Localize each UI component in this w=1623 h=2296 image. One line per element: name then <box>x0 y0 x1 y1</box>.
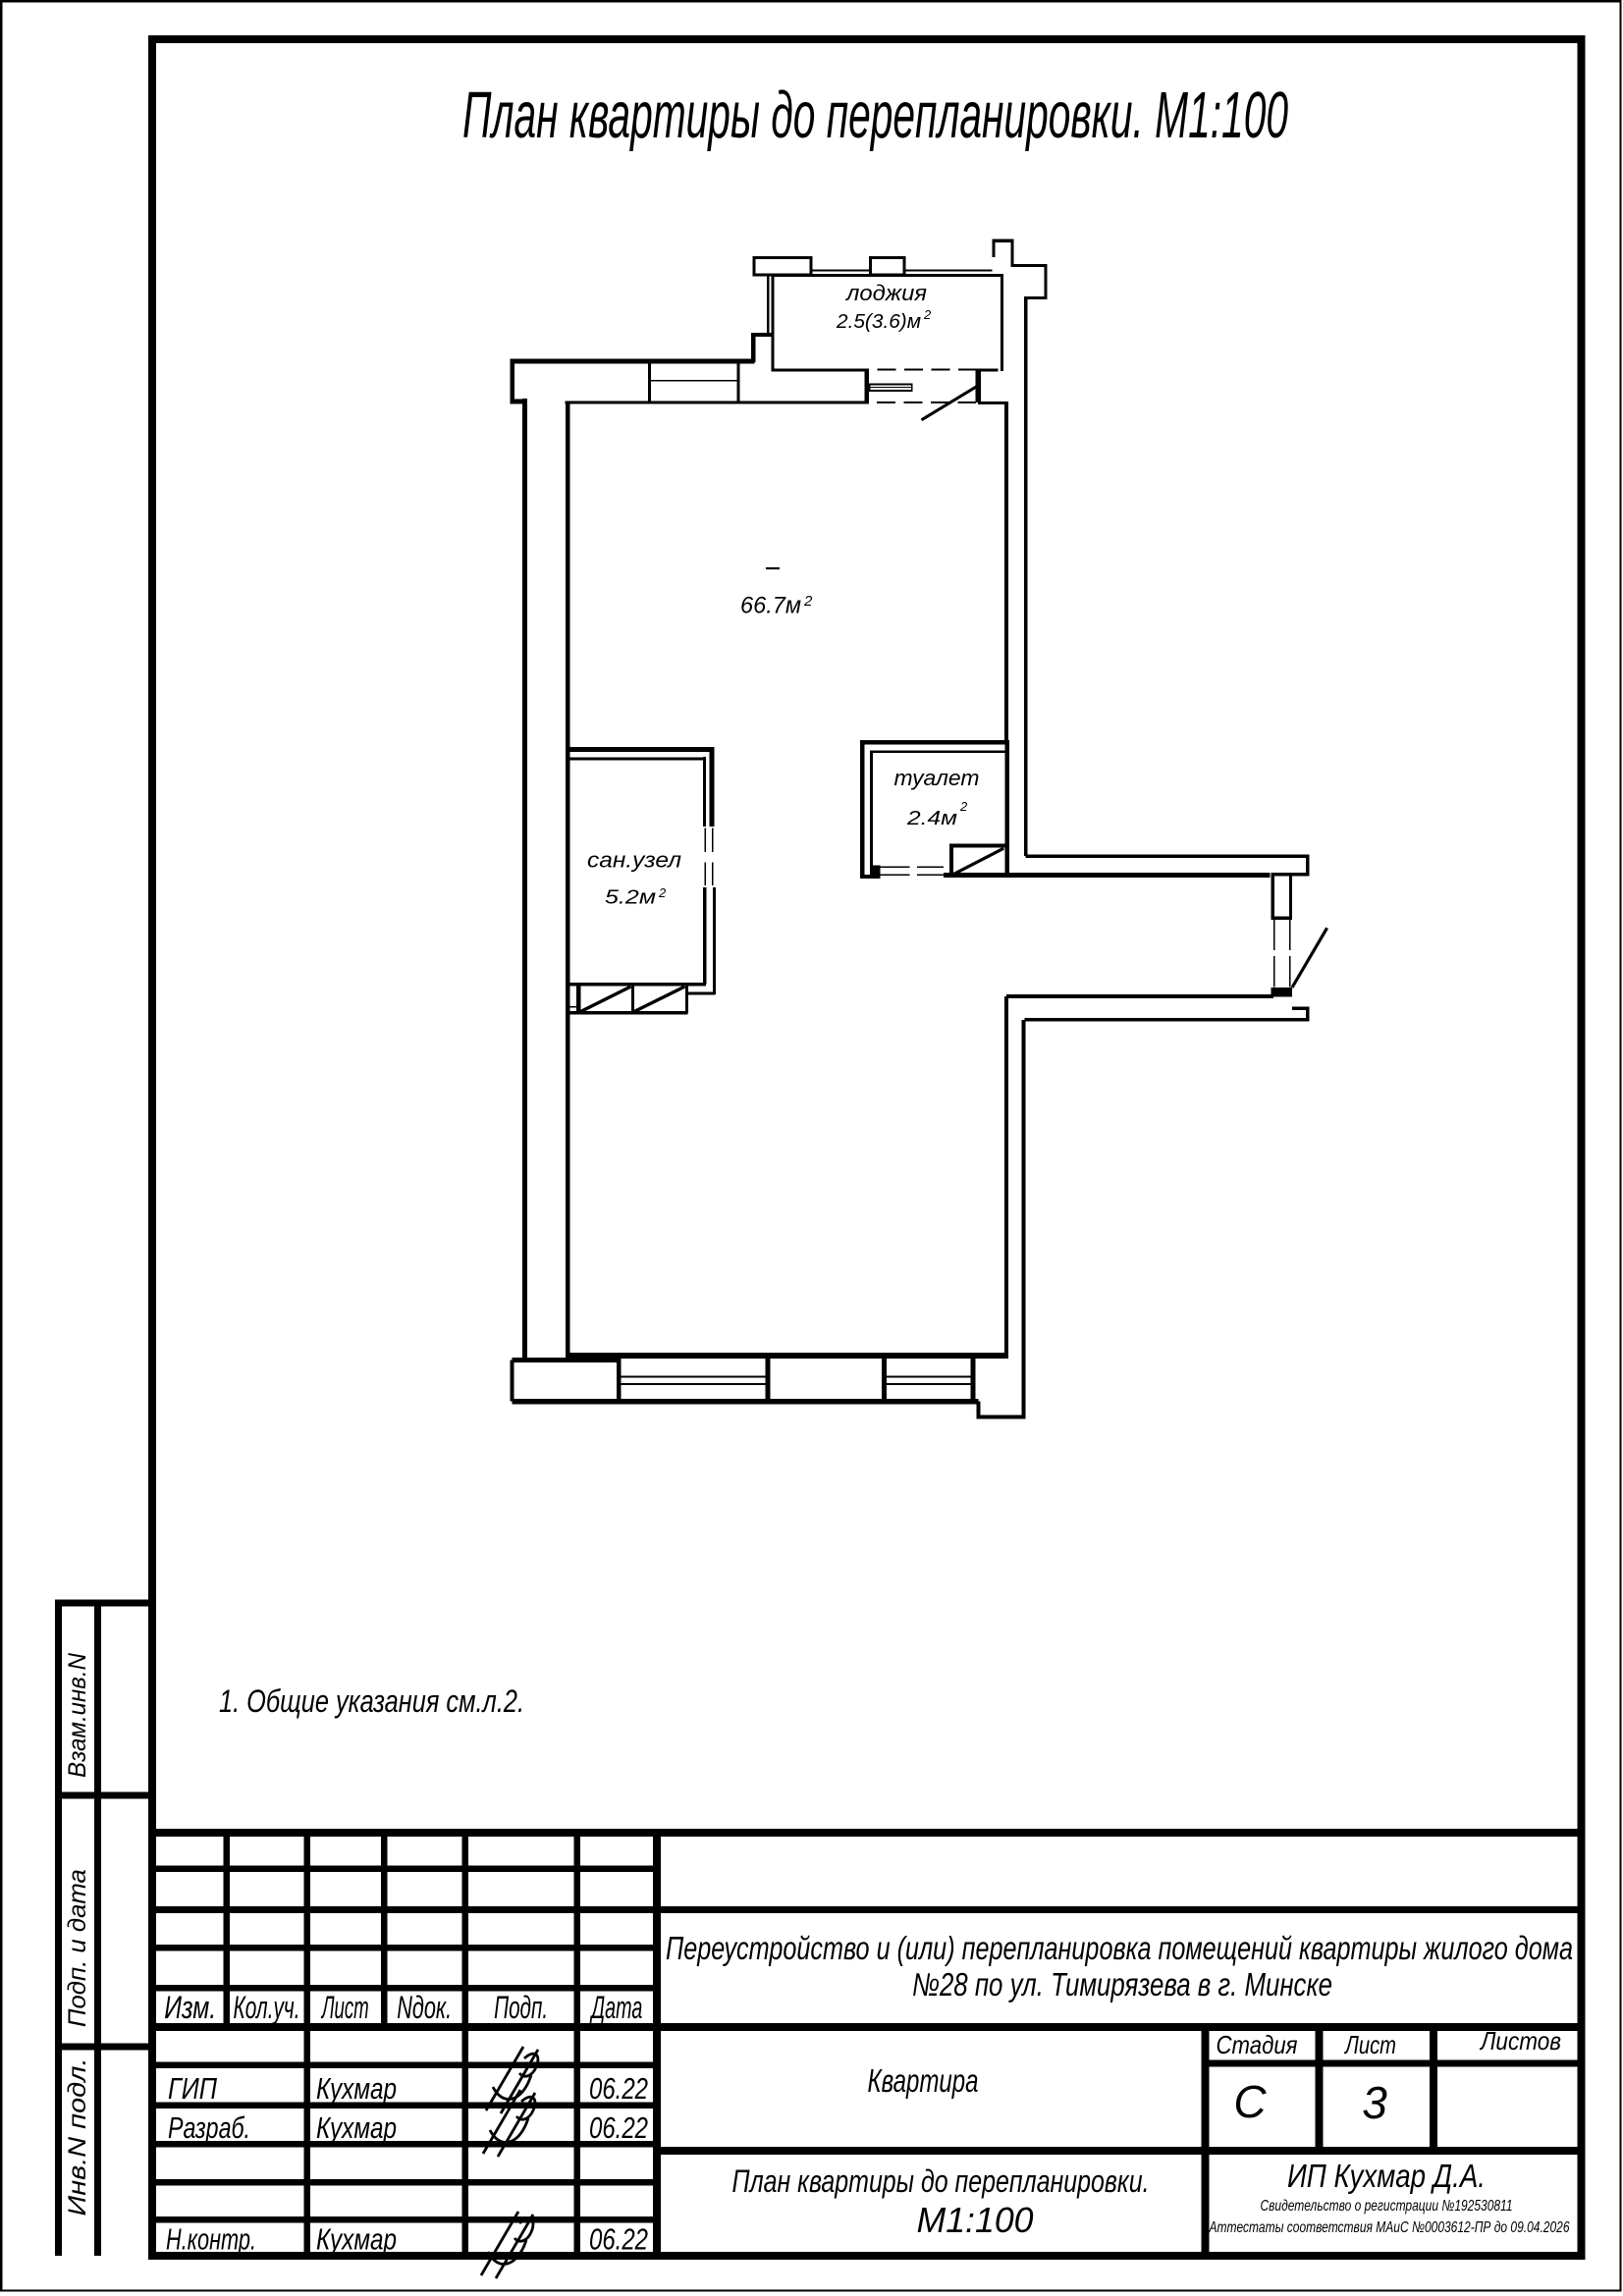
svg-text:План квартиры до перепланировк: План квартиры до перепланировки. М1:100 <box>462 79 1288 152</box>
svg-text:Свидетельство о регистрации №1: Свидетельство о регистрации №192530811 <box>1261 2198 1513 2215</box>
svg-text:2: 2 <box>803 593 813 610</box>
svg-text:06.22: 06.22 <box>589 2071 648 2106</box>
svg-text:2: 2 <box>959 799 968 814</box>
svg-text:Н.контр.: Н.контр. <box>166 2222 256 2257</box>
svg-text:ГИП: ГИП <box>168 2071 217 2106</box>
svg-text:1. Общие указания см.л.2.: 1. Общие указания см.л.2. <box>219 1683 524 1719</box>
svg-text:С: С <box>1233 2076 1267 2127</box>
svg-text:2.4м: 2.4м <box>906 808 958 829</box>
svg-text:М1:100: М1:100 <box>917 2200 1034 2240</box>
svg-text:06.22: 06.22 <box>589 2222 648 2257</box>
svg-text:Переустройство и (или) перепла: Переустройство и (или) перепланировка по… <box>666 1930 1573 1966</box>
svg-text:План квартиры до перепланировк: План квартиры до перепланировки. <box>732 2163 1150 2199</box>
svg-text:Квартира: Квартира <box>868 2062 979 2099</box>
svg-text:Стадия: Стадия <box>1217 2030 1298 2059</box>
svg-text:Nдок.: Nдок. <box>397 1990 452 2025</box>
svg-text:Изм.: Изм. <box>164 1990 216 2025</box>
svg-text:Аттестаты соответствия МАиС №0: Аттестаты соответствия МАиС №0003612-ПР … <box>1209 2219 1570 2236</box>
svg-text:Взам.инв.N: Взам.инв.N <box>64 1652 91 1778</box>
svg-text:лоджия: лоджия <box>844 281 927 305</box>
svg-text:5.2м: 5.2м <box>605 887 656 909</box>
svg-text:сан.узел: сан.узел <box>587 848 681 873</box>
svg-text:Кухмар: Кухмар <box>316 2110 397 2145</box>
svg-text:2.5(3.6)м: 2.5(3.6)м <box>836 311 921 333</box>
svg-text:2: 2 <box>658 885 667 900</box>
svg-text:туалет: туалет <box>894 766 980 790</box>
svg-text:Кол.уч.: Кол.уч. <box>234 1990 300 2025</box>
svg-text:Кухмар: Кухмар <box>316 2071 397 2106</box>
svg-text:Кухмар: Кухмар <box>316 2222 397 2257</box>
svg-text:66.7м: 66.7м <box>740 593 801 619</box>
svg-text:ИП Кухмар Д.А.: ИП Кухмар Д.А. <box>1287 2158 1486 2194</box>
svg-text:3: 3 <box>1362 2077 1387 2128</box>
svg-text:Подп. и дата: Подп. и дата <box>64 1869 91 2027</box>
svg-text:Лист: Лист <box>1343 2030 1396 2059</box>
svg-text:Инв.N подл.: Инв.N подл. <box>64 2058 91 2216</box>
svg-text:Подп.: Подп. <box>494 1990 548 2025</box>
svg-text:Дата: Дата <box>589 1990 642 2025</box>
svg-text:06.22: 06.22 <box>589 2110 648 2145</box>
svg-text:Лист: Лист <box>321 1990 369 2025</box>
svg-text:Листов: Листов <box>1479 2026 1561 2056</box>
svg-text:Разраб.: Разраб. <box>168 2110 250 2145</box>
svg-text:№28 по ул. Тимирязева в г. Мин: №28 по ул. Тимирязева в г. Минске <box>912 1966 1332 2002</box>
svg-text:2: 2 <box>923 307 932 322</box>
